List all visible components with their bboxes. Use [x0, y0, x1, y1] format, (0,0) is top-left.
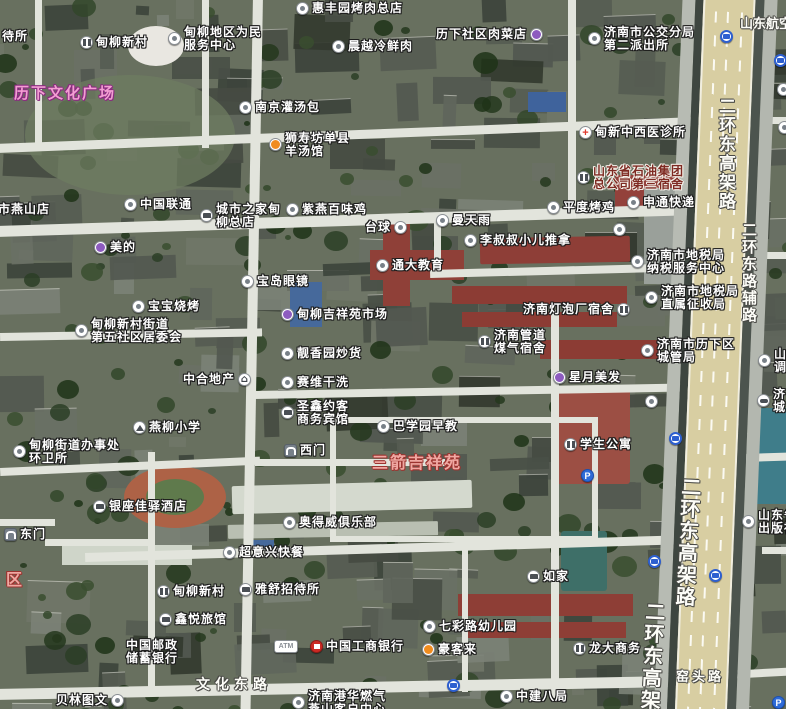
tree-canopy [399, 175, 413, 187]
map-poi-label[interactable]: 狮寿坊单县羊汤馆 [269, 132, 350, 158]
area-label[interactable]: 历下文化广场 [14, 82, 116, 103]
dot-icon[interactable] [613, 223, 626, 236]
purple-icon [530, 28, 543, 41]
map-poi-label[interactable]: 中建八局 [500, 690, 568, 703]
purple-icon [281, 308, 294, 321]
road-label-char: 东 [643, 645, 664, 668]
poi-label-text: 中国邮政储蓄银行 [126, 639, 178, 665]
road-label-char: 环 [680, 498, 701, 521]
road-segment [568, 0, 576, 216]
purple-icon [553, 371, 566, 384]
tree-canopy [44, 631, 66, 650]
map-poi-label[interactable]: 中国邮政储蓄银行 [126, 639, 178, 665]
building-block [363, 158, 395, 170]
poi-label-text: 申通快递 [643, 196, 695, 209]
road-label-char: 环 [742, 239, 757, 256]
poi-label-text: 济城 [773, 388, 786, 414]
tree-canopy [72, 0, 96, 17]
building-block [383, 562, 413, 603]
road-label-char: 路 [719, 192, 736, 211]
map-poi-label[interactable]: 超意兴快餐 [223, 546, 304, 559]
map-poi-label[interactable]: 美的 [94, 241, 136, 254]
map-poi-label[interactable]: 晨越冷鲜肉 [332, 40, 413, 53]
tree-canopy [473, 52, 498, 74]
tree-canopy [174, 359, 183, 366]
dot-icon[interactable] [645, 395, 658, 408]
building-block [597, 482, 641, 509]
dot-icon [296, 2, 309, 15]
house-icon [238, 373, 251, 386]
road-segment [551, 310, 559, 698]
dot-icon [588, 32, 601, 45]
bus-icon [669, 432, 682, 445]
map-poi-label[interactable]: 圣鑫约客商务宾馆 [281, 400, 349, 426]
map-poi-label[interactable]: 甸柳吉祥苑市场 [281, 308, 388, 321]
poi-label-text: 中国联通 [140, 198, 192, 211]
dot-icon[interactable] [777, 83, 786, 96]
dot-icon [500, 690, 513, 703]
poi-label-text: 甸柳吉祥苑市场 [297, 308, 388, 321]
road-segment [45, 539, 153, 546]
tree-canopy [74, 500, 83, 507]
map-poi-label[interactable]: 学生公寓 [564, 438, 632, 451]
poi-label-text: 狮寿坊单县羊汤馆 [285, 132, 350, 158]
poi-label-text: 济南市公交分局第二派出所 [604, 26, 695, 52]
tree-canopy [612, 556, 637, 577]
map-poi-label[interactable]: 曼天雨 [436, 214, 491, 227]
tree-canopy [474, 97, 491, 112]
dot-icon [778, 121, 786, 134]
map-poi-label[interactable]: 紫燕百味鸡 [286, 203, 367, 216]
parking-icon[interactable]: P [772, 696, 785, 709]
poi-label-text: 燕柳小学 [149, 421, 201, 434]
map-poi-label[interactable]: 申通快递 [627, 196, 695, 209]
tree-canopy [540, 177, 551, 187]
tree-canopy [228, 705, 241, 709]
poi-label-line: 直属征收局 [661, 298, 739, 311]
tree-canopy [66, 582, 87, 600]
poi-label-text: 贝林图文 [56, 694, 108, 707]
dot-icon [758, 354, 771, 367]
tree-canopy [24, 273, 40, 287]
building-block [431, 139, 475, 149]
dot-icon [281, 376, 294, 389]
parking-glyph: P [775, 698, 781, 708]
building-block [490, 457, 549, 471]
tree-canopy [432, 366, 453, 384]
parking-icon: P [581, 469, 594, 482]
road-label[interactable]: 窑头路 [676, 666, 724, 685]
area-label[interactable]: 三箭吉祥苑 [372, 449, 462, 473]
map-poi-label[interactable]: 甸柳地区为民服务中心 [168, 26, 262, 52]
map-poi-label[interactable]: 平度烤鸡 [547, 201, 615, 214]
map-poi-label[interactable]: 甸新中西医诊所 [579, 126, 686, 139]
road-label-vertical[interactable]: 二环东高架路 [719, 97, 736, 211]
poi-label-line: 第二派出所 [604, 39, 695, 52]
map-poi-label[interactable]: 济南市公交分局第二派出所 [588, 26, 695, 52]
tree-canopy [370, 341, 391, 359]
map-poi-label[interactable]: 济南市地税局纳税服务中心 [631, 249, 725, 275]
road-label-char: 路 [742, 307, 757, 324]
poi-label-text: 美的 [110, 241, 136, 254]
map-poi-label[interactable]: 燕柳小学 [133, 421, 201, 434]
map-poi-label[interactable]: 惠丰园烤肉总店 [296, 2, 403, 15]
poi-label-text: 晨越冷鲜肉 [348, 40, 413, 53]
road-label[interactable]: 文化东路 [196, 674, 272, 694]
map-poi-label[interactable]: 中国工商银行 [310, 640, 404, 653]
tree-canopy [57, 380, 79, 399]
tree-canopy [662, 14, 675, 25]
tree-canopy [22, 44, 29, 50]
poi-label-text: 宝岛眼镜 [257, 275, 309, 288]
map-poi-label[interactable]: 山东省石油集团总公司第三宿舍 [577, 165, 684, 191]
map-poi-label[interactable]: 济南管道煤气宿舍 [478, 329, 546, 355]
map-poi-label[interactable]: 雅舒招待所 [239, 583, 320, 596]
road-segment [330, 417, 598, 423]
building-block [618, 60, 665, 96]
map-poi-label[interactable]: 鑫悦旅馆 [159, 613, 227, 626]
poi-label-text: 七彩路幼儿园 [439, 620, 517, 633]
tree-canopy [152, 253, 163, 262]
poi-label-text: 山东省出版社 [758, 509, 786, 535]
road-label-char: 路 [742, 273, 757, 290]
building-icon [564, 438, 577, 451]
tree-canopy [350, 422, 372, 441]
bus-icon[interactable] [648, 555, 661, 568]
poi-label-text: 雅舒招待所 [255, 583, 320, 596]
bus-icon[interactable] [709, 569, 722, 582]
map-poi-label[interactable]: 靓香园炒货 [281, 347, 362, 360]
poi-label-text: 甸柳地区为民服务中心 [184, 26, 262, 52]
map-poi-label[interactable]: 贝林图文 [56, 694, 124, 707]
road-label-char: 高 [677, 542, 698, 565]
tree-canopy [366, 146, 378, 156]
map-poi-label[interactable]: 城市之家甸柳总店 [200, 203, 281, 229]
poi-label-text: 城市之家甸柳总店 [216, 203, 281, 229]
map-poi-label[interactable]: 甸柳新村 [157, 585, 225, 598]
dot-icon [111, 694, 124, 707]
road-label-char: 二 [742, 222, 757, 239]
dot-icon [75, 324, 88, 337]
map-poi-label[interactable]: 山东省出版社 [742, 509, 786, 535]
building-block [157, 15, 169, 26]
map-poi-label[interactable]: 甸柳新村 [80, 36, 148, 49]
poi-label-text: 紫燕百味鸡 [302, 203, 367, 216]
dot-icon [631, 255, 644, 268]
poi-label-line: 煤气宿舍 [494, 342, 546, 355]
map-poi-label[interactable]: 市燕山店 [0, 203, 50, 216]
hotel-icon [159, 613, 172, 626]
map-poi-label[interactable]: 中合地产 [183, 373, 251, 386]
bus-icon[interactable] [720, 30, 733, 43]
map-poi-label[interactable]: 甸柳新村街道第五社区居委会 [75, 318, 182, 344]
building-block [519, 474, 548, 496]
poi-label-line: 第五社区居委会 [91, 331, 182, 344]
tree-canopy [38, 594, 46, 601]
atm-icon: ATM [274, 640, 298, 653]
road-label-char: 高 [719, 154, 736, 173]
building-block [775, 296, 786, 319]
map-poi-label[interactable]: 山调 [758, 348, 786, 374]
map-poi-label[interactable]: 银座佳驿酒店 [93, 500, 187, 513]
map-poi-label[interactable]: 南京灌汤包 [239, 101, 320, 114]
dot-icon [283, 516, 296, 529]
dot-icon [423, 620, 436, 633]
building-block [0, 376, 44, 413]
road-label-char: 东 [742, 256, 757, 273]
map-poi-label[interactable]: 济南港华燃气燕山客户中心 [292, 690, 386, 709]
road-segment [462, 540, 468, 692]
poi-label-text: 圣鑫约客商务宾馆 [297, 400, 349, 426]
parking-icon: P [772, 696, 785, 709]
road-segment [35, 0, 42, 146]
orange-icon [422, 643, 435, 656]
tree-canopy [64, 189, 79, 202]
tree-canopy [210, 628, 217, 634]
road-label-char: 架 [640, 689, 661, 709]
hotel-icon [281, 406, 294, 419]
bus-icon [709, 569, 722, 582]
poi-label-text: 星月美发 [569, 371, 621, 384]
tree-canopy [121, 232, 130, 239]
building-block [396, 83, 419, 122]
dot-icon [168, 32, 181, 45]
road-label-char: 辅 [742, 290, 757, 307]
hotel-icon [93, 500, 106, 513]
tree-canopy [111, 368, 125, 380]
poi-label-text: 济南市地税局纳税服务中心 [647, 249, 725, 275]
tree-canopy [195, 633, 206, 642]
map-poi-label[interactable]: 豪客来 [422, 643, 477, 656]
road-label-char: 架 [719, 173, 736, 192]
road-segment [762, 547, 786, 554]
dot-icon [241, 275, 254, 288]
tree-canopy [50, 490, 64, 502]
bus-icon[interactable] [774, 54, 786, 67]
hotel-icon [527, 570, 540, 583]
building-block [136, 6, 149, 16]
poi-label-line: 柳总店 [216, 216, 281, 229]
poi-label-text: 山东省石油集团总公司第三宿舍 [593, 165, 684, 191]
dot-icon [223, 546, 236, 559]
map-poi-label[interactable]: 西门 [284, 444, 326, 457]
poi-label-text: 济南管道煤气宿舍 [494, 329, 546, 355]
bank-icon [310, 640, 323, 653]
landmark-decor [232, 480, 473, 514]
building-block [10, 234, 33, 264]
hotel-icon [239, 583, 252, 596]
poi-label-line: 商务宾馆 [297, 413, 349, 426]
poi-label-line: 环卫所 [29, 452, 120, 465]
map-poi-label[interactable]: 通大教育 [376, 259, 444, 272]
road-label-char: 环 [719, 116, 736, 135]
building-icon [80, 36, 93, 49]
building-block [264, 403, 280, 437]
map-poi-label[interactable]: 甸柳街道办事处环卫所 [13, 439, 120, 465]
poi-label-line: 羊汤馆 [285, 145, 350, 158]
tree-canopy [340, 173, 354, 185]
poi-label-text: 银座佳驿酒店 [109, 500, 187, 513]
dot-icon [613, 223, 626, 236]
dot-icon [239, 101, 252, 114]
tree-canopy [50, 404, 70, 421]
road-label-vertical[interactable]: 二环东路辅路 [742, 222, 757, 324]
dot-icon [641, 344, 654, 357]
building-block [169, 437, 186, 447]
building-block [110, 255, 177, 280]
poi-label-text: 甸柳新村 [173, 585, 225, 598]
poi-label-text: 惠丰园烤肉总店 [312, 2, 403, 15]
road-label-char: 东 [679, 520, 700, 543]
orange-icon [269, 138, 282, 151]
building-icon [573, 642, 586, 655]
map-poi-label[interactable]: 七彩路幼儿园 [423, 620, 517, 633]
dot-icon [281, 347, 294, 360]
map-poi-label[interactable]: 李叔叔小儿推拿 [464, 234, 571, 247]
poi-label-text: 历下社区肉菜店 [436, 28, 527, 41]
poi-label-text: 中合地产 [183, 373, 235, 386]
poi-label-text: 东门 [20, 528, 46, 541]
map-poi-label[interactable]: 济南市地税局直属征收局 [645, 285, 739, 311]
poi-label-text: 济南灯泡厂宿舍 [523, 303, 614, 316]
road-label-char: 二 [681, 476, 702, 499]
tree-canopy [244, 121, 250, 126]
cross-icon [579, 126, 592, 139]
landmark-decor [458, 594, 633, 616]
poi-label-text: 豪客来 [438, 643, 477, 656]
dot-icon [394, 221, 407, 234]
tree-canopy [66, 614, 91, 635]
poi-label-line: 纳税服务中心 [647, 262, 725, 275]
poi-label-text: 甸柳新村 [96, 36, 148, 49]
building-block [176, 0, 194, 19]
tree-canopy [604, 107, 617, 118]
tree-canopy [304, 561, 325, 579]
tree-canopy [401, 27, 410, 34]
poi-label-text: 平度烤鸡 [563, 201, 615, 214]
tree-canopy [503, 87, 516, 98]
map-poi-label[interactable]: 星月美发 [553, 371, 621, 384]
poi-label-text: 靓香园炒货 [297, 347, 362, 360]
tree-canopy [477, 512, 496, 528]
poi-label-text: 甸新中西医诊所 [595, 126, 686, 139]
tree-canopy [419, 163, 432, 174]
dot-icon [377, 420, 390, 433]
landmark-decor [528, 92, 566, 112]
poi-label-text: 赛维干洗 [297, 376, 349, 389]
road-segment [202, 0, 209, 148]
tree-canopy [324, 231, 348, 251]
parking-icon[interactable]: P [581, 469, 594, 482]
tree-canopy [208, 408, 216, 414]
poi-label-text: 李叔叔小儿推拿 [480, 234, 571, 247]
poi-label-text: 鑫悦旅馆 [175, 613, 227, 626]
dot-icon [547, 201, 560, 214]
dot-icon [645, 395, 658, 408]
bus-icon[interactable] [447, 679, 460, 692]
poi-label-text: 学生公寓 [580, 438, 632, 451]
poi-label-text: 西门 [300, 444, 326, 457]
map-poi-label[interactable]: 如家 [527, 570, 569, 583]
map-poi-label[interactable]: 台球 [365, 221, 407, 234]
bus-icon[interactable] [669, 432, 682, 445]
road-segment [0, 519, 55, 526]
poi-label-line: 总公司第三宿舍 [593, 178, 684, 191]
area-label[interactable]: 区 [6, 566, 24, 590]
car-icon [757, 394, 770, 407]
map-poi-label[interactable]: 宝岛眼镜 [241, 275, 309, 288]
poi-label-text: 台球 [365, 221, 391, 234]
map-poi-label[interactable]: 济南灯泡厂宿舍 [523, 303, 630, 316]
tree-canopy [166, 563, 191, 584]
poi-label-line: 服务中心 [184, 39, 262, 52]
building-block [481, 0, 506, 22]
poi-label-text: 济南港华燃气燕山客户中心 [308, 690, 386, 709]
parking-glyph: P [584, 471, 590, 481]
poi-label-text: 宝宝烧烤 [148, 300, 200, 313]
building-block [351, 180, 401, 197]
map-poi-label[interactable]: 巴学园早教 [377, 420, 458, 433]
poi-label-line: 燕山客户中心 [308, 703, 386, 709]
poi-label-text: 通大教育 [392, 259, 444, 272]
poi-label-text: 奥得威俱乐部 [299, 516, 377, 529]
dot-icon [292, 696, 305, 709]
tree-canopy [495, 396, 505, 404]
map-poi-label[interactable]: 东门 [4, 528, 46, 541]
road-label-char: 架 [676, 564, 697, 587]
poi-label-text: 超意兴快餐 [239, 546, 304, 559]
map-poi-label[interactable]: 济城 [757, 388, 786, 414]
map-poi-label[interactable]: ATM [274, 640, 298, 653]
dot-icon [436, 214, 449, 227]
poi-label-text: 如家 [543, 570, 569, 583]
hotel-icon [200, 209, 213, 222]
school-icon [133, 421, 146, 434]
road-label-char: 路 [675, 586, 696, 609]
road-label-char: 高 [641, 667, 662, 690]
map-poi-label[interactable]: 宝宝烧烤 [132, 300, 200, 313]
bus-icon [720, 30, 733, 43]
tree-canopy [351, 73, 359, 80]
poi-label-text: 中建八局 [516, 690, 568, 703]
dot-icon[interactable] [778, 121, 786, 134]
map-poi-label[interactable]: 待所 [2, 30, 28, 43]
tree-canopy [285, 235, 291, 240]
poi-label-line: 调 [774, 361, 786, 374]
map-poi-label[interactable]: 中国联通 [124, 198, 192, 211]
building-icon [617, 303, 630, 316]
atm-glyph: ATM [279, 643, 294, 650]
building-icon [157, 585, 170, 598]
road-label-char: 环 [644, 623, 665, 646]
tree-canopy [514, 435, 529, 447]
road-label[interactable]: 山东航空 [740, 13, 786, 32]
tree-canopy [263, 185, 271, 191]
tree-canopy [157, 397, 175, 413]
map-poi-label[interactable]: 济南市历下区城管局 [641, 338, 735, 364]
tree-canopy [374, 20, 393, 36]
dot-icon [627, 196, 640, 209]
poi-label-line: 城 [773, 401, 786, 414]
map-poi-label[interactable]: 赛维干洗 [281, 376, 349, 389]
map-poi-label[interactable]: 龙大商务 [573, 642, 641, 655]
bus-icon [648, 555, 661, 568]
map-poi-label[interactable]: 奥得威俱乐部 [283, 516, 377, 529]
satellite-map-canvas[interactable]: 惠丰园烤肉总店待所甸柳新村甸柳地区为民服务中心历下社区肉菜店济南市公交分局第二派… [0, 0, 786, 709]
poi-label-text: 甸柳街道办事处环卫所 [29, 439, 120, 465]
map-poi-label[interactable]: 历下社区肉菜店 [436, 28, 543, 41]
building-block [172, 57, 230, 79]
